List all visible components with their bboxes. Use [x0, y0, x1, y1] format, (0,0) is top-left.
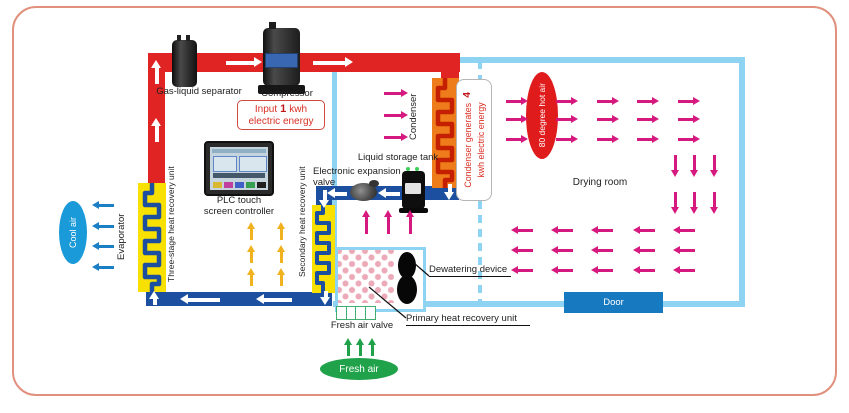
- condenser-energy-line1: Condenser generates 4: [461, 92, 475, 188]
- coil-icon: [312, 205, 335, 293]
- fresh-air-label: Fresh air: [339, 364, 378, 375]
- pipe-suction-riser: [148, 53, 165, 183]
- fresh-air-valve-label: Fresh air valve: [322, 320, 402, 331]
- primary-unit-label: Primary heat recovery unit: [406, 313, 530, 326]
- plc-touch-screen: [204, 141, 274, 196]
- cool-air-badge: Cool air: [59, 201, 87, 264]
- room-wall-right: [739, 57, 745, 307]
- heat-pump-dryer-diagram: Cool air 80 degree hot air Fresh air Doo…: [0, 0, 849, 413]
- liquid-storage-tank-label: Liquid storage tank: [346, 152, 450, 163]
- tank-base: [399, 208, 428, 213]
- dewatering-device-label: Dewatering device: [429, 264, 511, 277]
- plc-screen: [210, 147, 268, 190]
- fresh-air-badge: Fresh air: [320, 358, 398, 380]
- three-stage-heat-recovery-unit: [138, 183, 166, 292]
- compressor: [263, 28, 300, 86]
- plc-label: PLC touch screen controller: [199, 195, 279, 217]
- coil-icon: [432, 78, 459, 188]
- three-stage-unit-label: Three-stage heat recovery unit: [166, 156, 176, 292]
- dewatering-device: [396, 252, 418, 304]
- gas-liquid-separator: [172, 40, 197, 87]
- drying-room-label: Drying room: [558, 177, 642, 188]
- fresh-air-valve: [336, 306, 376, 320]
- evaporator-label: Evaporator: [116, 206, 127, 268]
- hot-air-label: 80 degree hot air: [537, 83, 547, 147]
- compressor-label-band: [265, 53, 298, 68]
- condenser-unit: [432, 78, 459, 188]
- secondary-heat-recovery-unit: [312, 205, 335, 293]
- cool-air-label: Cool air: [68, 217, 78, 248]
- condenser-energy-note: Condenser generates 4 kwh electric energ…: [456, 79, 492, 201]
- door-label: Door: [603, 297, 624, 308]
- secondary-unit-label: Secondary heat recovery unit: [297, 158, 307, 286]
- hot-air-badge: 80 degree hot air: [526, 72, 558, 159]
- condenser-label: Condenser: [408, 88, 419, 146]
- gas-liquid-separator-label: Gas-liquid separator: [146, 86, 252, 97]
- room-wall-top: [428, 57, 745, 63]
- plc-screen-buttons: [213, 182, 266, 188]
- compressor-label: Compressor: [250, 88, 324, 99]
- coil-icon: [138, 183, 166, 292]
- pipe-return-line: [146, 292, 332, 306]
- door: Door: [564, 292, 663, 313]
- primary-heat-recovery-unit: [338, 250, 394, 303]
- condenser-energy-line2: kwh electric energy: [475, 92, 488, 188]
- expansion-valve-label: Electronic expansion valve: [313, 166, 413, 188]
- input-energy-line2: electric energy: [248, 116, 313, 128]
- input-energy-note: Input1kwh electric energy: [237, 100, 325, 130]
- input-energy-line1: Input1kwh: [255, 103, 307, 116]
- pipe-liquid-line: [316, 186, 459, 200]
- compressor-nub: [269, 22, 276, 29]
